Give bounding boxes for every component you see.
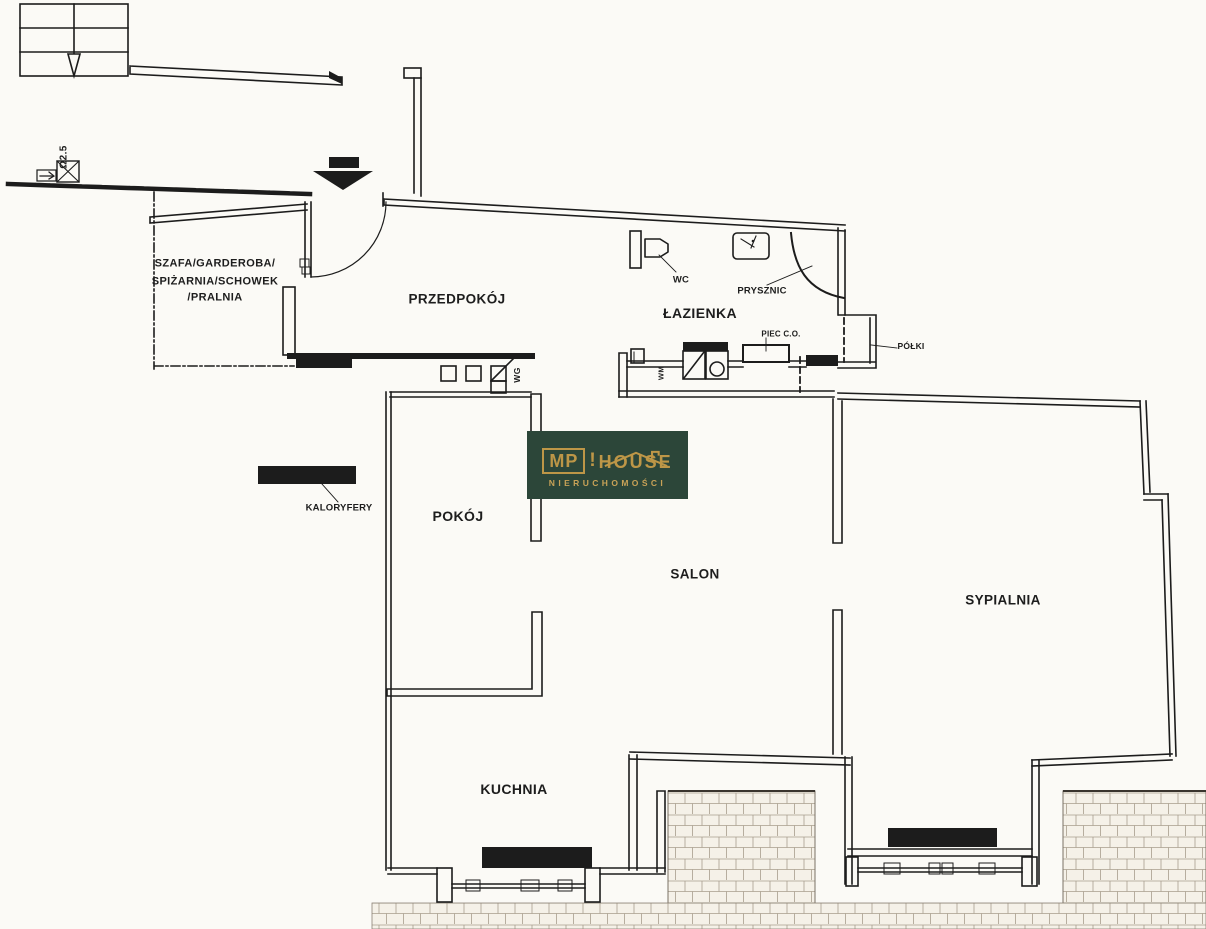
fixture-label-wc: WC: [673, 275, 689, 286]
toilet-icon: [630, 231, 668, 268]
height-mark-label: Ω2.5: [59, 145, 70, 169]
radiator: [888, 828, 997, 847]
logo-mp: MP: [542, 448, 585, 474]
room-label-bathroom: ŁAZIENKA: [663, 305, 737, 321]
staircase-icon: [20, 4, 128, 76]
hallway-top-wall: [384, 199, 845, 231]
exterior-wall-bar: [130, 66, 342, 85]
room-label-hallway: PRZEDPOKÓJ: [408, 292, 505, 307]
room-label-living-room: SALON: [670, 567, 719, 582]
shower-tray-icon: [733, 233, 769, 259]
shower-curtain: [791, 233, 844, 298]
shelves-niche: [838, 315, 876, 368]
fixture-label-boiler: PIEC C.O.: [761, 330, 800, 339]
logo-house: HOUSE: [599, 450, 673, 472]
room-label-storage-line2: SPIŻARNIA/SCHOWEK: [152, 274, 279, 291]
entry-door: [300, 193, 386, 277]
room-walls: [386, 392, 542, 870]
legend-label-radiators: KALORYFERY: [306, 503, 373, 514]
agency-logo: MP ! HOUSE NIERUCHOMOŚCI: [527, 431, 688, 499]
corridor-wall: [404, 68, 421, 196]
room-label-bedroom: SYPIALNIA: [965, 593, 1041, 608]
bedroom-window: [846, 857, 1037, 886]
fixture-label-shelves: PÓŁKI: [898, 341, 925, 351]
entrance-arrow-icon: [313, 157, 373, 190]
radiator: [806, 355, 838, 366]
room-label-room: POKÓJ: [432, 508, 483, 524]
radiator-legend-swatch: [258, 466, 356, 484]
fixture-label-shower: PRYSZNIC: [737, 286, 786, 297]
vent-grid-icon: [441, 359, 513, 393]
washing-machine-label: WM: [657, 366, 666, 380]
room-label-storage-line1: SZAFA/GARDEROBA/: [155, 256, 276, 273]
floor-plan: SZAFA/GARDEROBA/ SPIŻARNIA/SCHOWEK /PRAL…: [0, 0, 1206, 929]
room-label-storage-line3: /PRALNIA: [187, 290, 242, 307]
height-marker-icon: [8, 161, 310, 194]
logo-subtitle: NIERUCHOMOŚCI: [549, 478, 666, 488]
kitchen-window: [437, 868, 600, 902]
vent-shaft-label: WG: [512, 367, 522, 382]
room-label-kitchen: KUCHNIA: [480, 781, 547, 797]
logo-separator: !: [589, 450, 595, 472]
house-roof-icon: [599, 450, 673, 467]
radiator: [482, 847, 592, 868]
